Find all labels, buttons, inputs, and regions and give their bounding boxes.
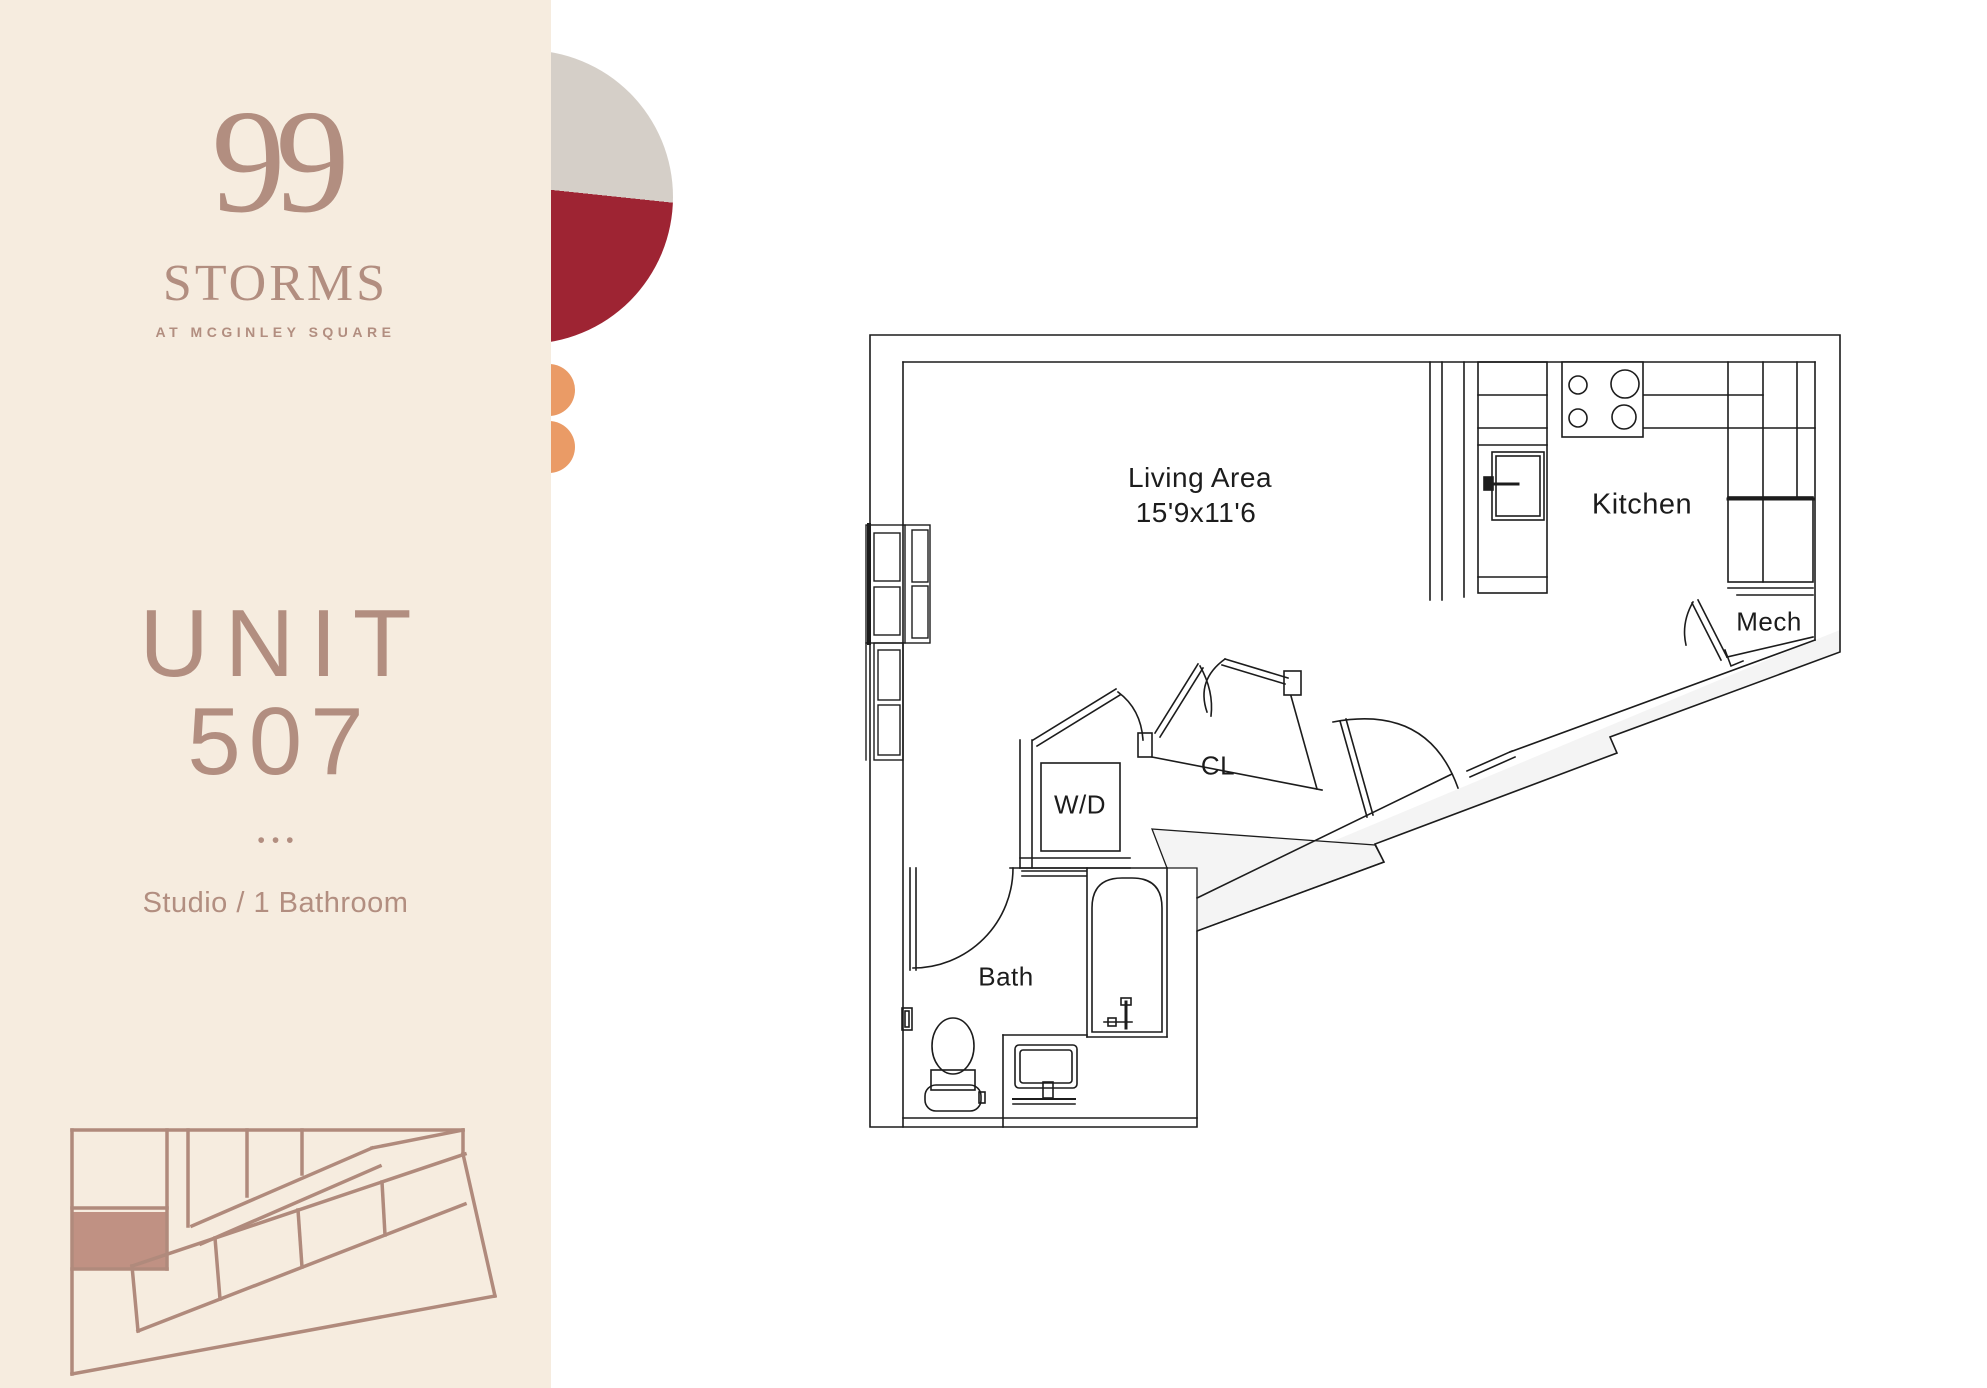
brand-tagline: AT MCGINLEY SQUARE [0, 324, 551, 340]
dots-separator: ••• [0, 829, 551, 853]
living-area-dimensions: 15'9x11'6 [1136, 497, 1257, 529]
washer-dryer-label: W/D [1054, 790, 1106, 821]
sidebar: 99 STORMS AT MCGINLEY SQUARE UNIT 507 ••… [0, 0, 551, 1388]
brand-name: STORMS [0, 258, 551, 310]
closet-label: CL [1201, 751, 1235, 782]
kitchen-label: Kitchen [1592, 489, 1692, 522]
bath-label: Bath [978, 962, 1034, 993]
unit-number: 507 [0, 693, 551, 791]
mech-label: Mech [1736, 607, 1802, 638]
unit-label: UNIT [0, 595, 551, 693]
living-area-label: Living Area [1128, 462, 1272, 494]
key-plan [55, 1122, 505, 1388]
unit-block: UNIT 507 ••• Studio / 1 Bathroom [0, 595, 551, 920]
brand-logo: 99 STORMS AT MCGINLEY SQUARE [0, 88, 551, 340]
unit-type: Studio / 1 Bathroom [0, 887, 551, 920]
brand-number: 99 [0, 88, 551, 236]
